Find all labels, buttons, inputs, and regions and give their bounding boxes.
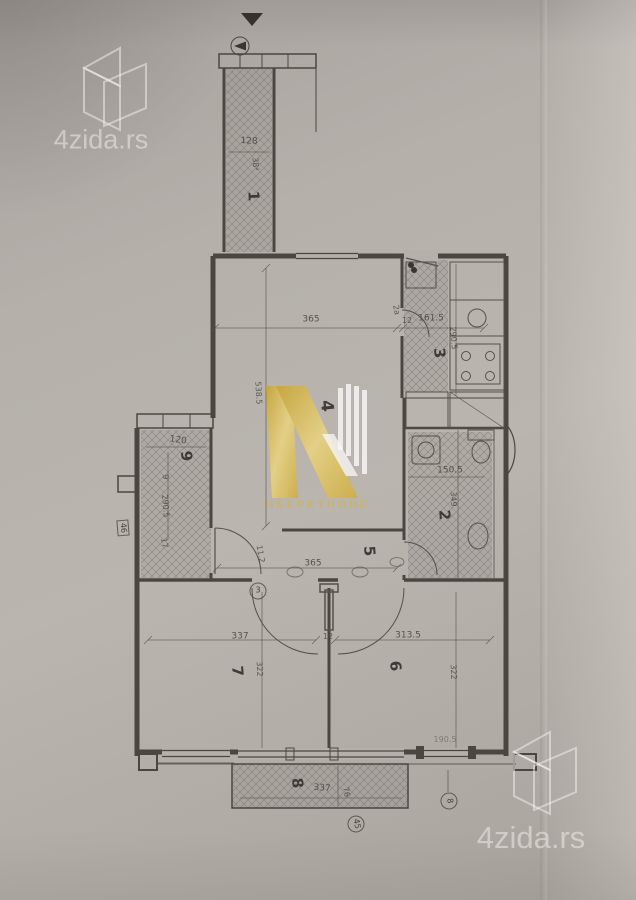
dim-kitchen-wall: 12	[402, 317, 412, 325]
room-8-number: 8	[289, 777, 305, 789]
hatch-terrace-9	[141, 430, 211, 578]
terrace9-door	[215, 528, 261, 574]
dim-room1-width: 128	[240, 137, 258, 147]
dim-room6-width: 313.5	[395, 632, 421, 641]
marker-hall-door: 3	[250, 583, 267, 600]
dim-room8-depth: 76	[341, 786, 351, 797]
room-9-number: 9	[178, 450, 194, 462]
door-tag-hall	[390, 558, 404, 567]
dim-room8-width: 337	[313, 784, 331, 794]
dim-hall-note: 11.2	[255, 545, 266, 564]
door-tag-left	[287, 567, 303, 577]
dim-bottom-right: 190.5	[434, 736, 457, 744]
dim-room3-height: 290.5	[448, 326, 458, 349]
room-1-number: 1	[245, 191, 260, 202]
room-5-number: 5	[361, 545, 377, 556]
dim-room9-note: 17	[159, 537, 169, 548]
dim-room7-height: 322	[255, 661, 264, 677]
dim-room9-side: 9	[161, 474, 169, 480]
room6-door-arc	[338, 588, 404, 654]
overlapping-quads-icon-bottom	[488, 726, 584, 826]
dim-room4-width: 365	[302, 316, 319, 325]
door-tag-right	[352, 567, 368, 577]
agency-logo-caption: НЕКРЕТНИНЕ	[266, 499, 371, 511]
marker-left-46: 46	[116, 519, 129, 536]
dim-rooms67-wall: 12	[323, 633, 333, 641]
dim-room2-height: 349	[449, 491, 458, 507]
room-7-number: 7	[229, 665, 245, 676]
hatch-kitchen-3	[404, 260, 448, 392]
room-2-number: 2	[436, 509, 452, 520]
room-3-number: 3	[431, 347, 447, 358]
room-6-number: 6	[387, 660, 403, 671]
dim-hall-width: 365	[304, 560, 321, 569]
scanned-floor-plan-page: 4zida.rs	[0, 0, 636, 900]
dim-room3-width: 161.5	[418, 315, 444, 324]
dim-room4-height: 538.5	[253, 381, 262, 404]
brand-watermark-bottom-right: 4zida.rs	[477, 820, 586, 856]
hatch-terrace-1	[226, 68, 272, 252]
dim-room3-door: 2a	[391, 304, 401, 315]
dim-room9-height: 290.5	[160, 494, 170, 518]
agency-n-logo	[252, 376, 382, 516]
window-top-wall	[296, 251, 358, 261]
north-arrow-icon	[241, 13, 263, 26]
dim-room6-height: 322	[449, 664, 458, 680]
dim-room2-width: 150.5	[437, 467, 463, 476]
room-4-number: 4	[317, 399, 335, 412]
dim-room1-area: 38²	[251, 157, 260, 171]
dim-room7-width: 337	[231, 633, 248, 642]
